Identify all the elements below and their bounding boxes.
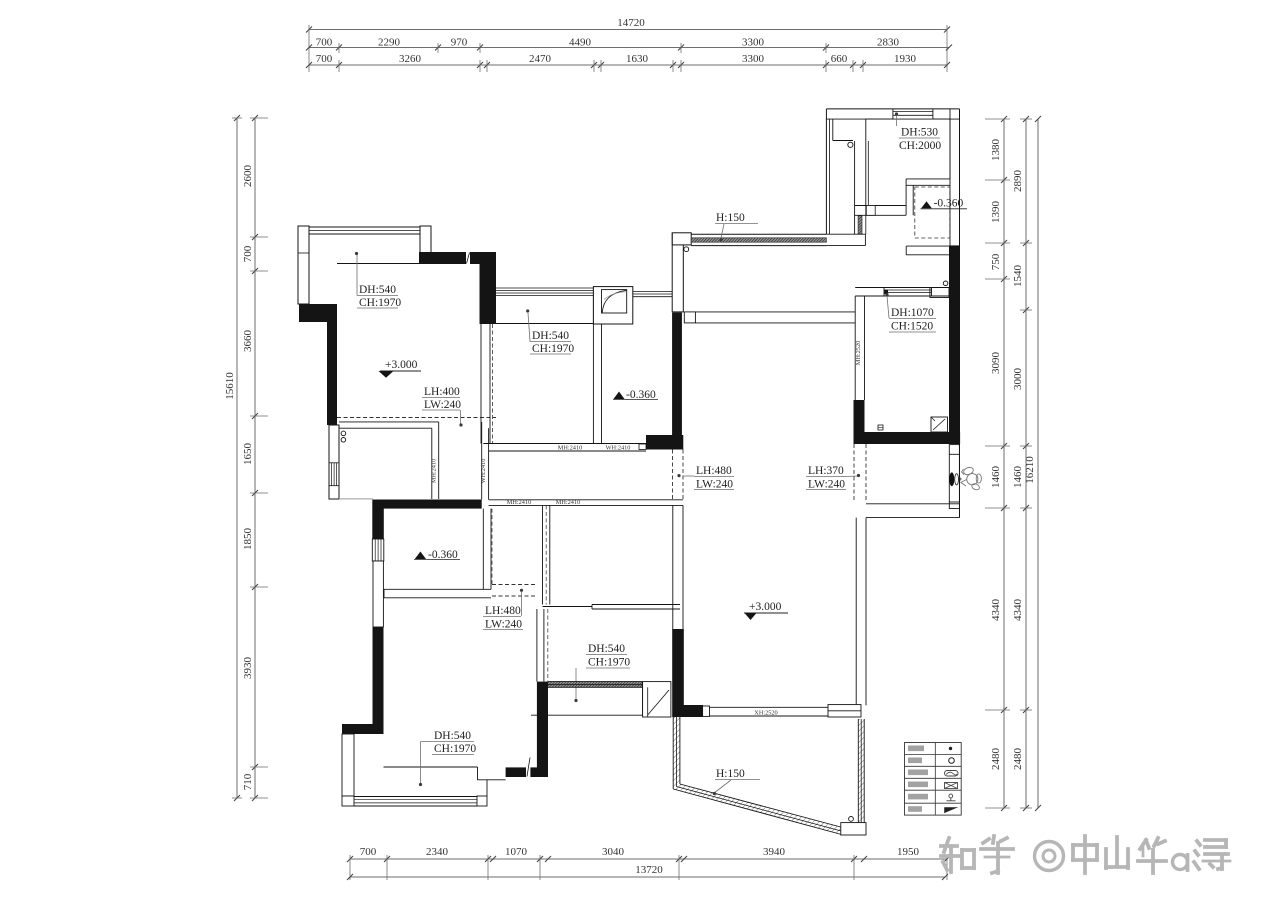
svg-text:700: 700	[242, 245, 254, 262]
svg-text:3940: 3940	[763, 846, 786, 858]
svg-text:H:150: H:150	[716, 768, 745, 780]
svg-text:16210: 16210	[1024, 456, 1036, 484]
svg-text:3660: 3660	[242, 330, 254, 353]
svg-text:1460: 1460	[990, 466, 1002, 489]
svg-text:LH:480: LH:480	[485, 605, 521, 617]
svg-text:700: 700	[316, 53, 333, 65]
svg-text:4340: 4340	[1012, 599, 1024, 622]
svg-text:2830: 2830	[877, 37, 900, 49]
svg-text:700: 700	[360, 846, 377, 858]
svg-text:2480: 2480	[1012, 748, 1024, 771]
svg-text:H:150: H:150	[716, 212, 745, 224]
svg-text:DH:540: DH:540	[588, 643, 625, 655]
svg-text:LH:370: LH:370	[808, 465, 844, 477]
svg-text:CH:1970: CH:1970	[434, 743, 476, 755]
svg-text:750: 750	[990, 253, 1002, 270]
svg-text:1850: 1850	[242, 528, 254, 551]
svg-text:CH:1520: CH:1520	[891, 321, 933, 333]
svg-text:3260: 3260	[399, 53, 422, 65]
svg-text:CH:2000: CH:2000	[899, 140, 941, 152]
svg-text:CH:1970: CH:1970	[588, 657, 630, 669]
svg-text:1540: 1540	[1012, 265, 1024, 288]
svg-text:LH:480: LH:480	[696, 465, 732, 477]
svg-text:2600: 2600	[242, 165, 254, 188]
svg-text:1630: 1630	[626, 53, 649, 65]
svg-text:1380: 1380	[990, 139, 1002, 162]
svg-text:2340: 2340	[426, 846, 449, 858]
svg-text:LW:240: LW:240	[485, 619, 522, 631]
svg-text:+3.000: +3.000	[385, 359, 418, 371]
svg-text:1930: 1930	[894, 53, 917, 65]
svg-text:3040: 3040	[602, 846, 625, 858]
svg-text:WH:2410: WH:2410	[480, 459, 487, 484]
svg-text:MH:2410: MH:2410	[507, 499, 532, 506]
svg-text:MH:2410: MH:2410	[556, 499, 581, 506]
svg-text:970: 970	[451, 37, 468, 49]
svg-text:1950: 1950	[897, 846, 920, 858]
svg-text:3930: 3930	[242, 657, 254, 680]
svg-text:DH:530: DH:530	[901, 127, 938, 139]
svg-text:+3.000: +3.000	[749, 601, 782, 613]
svg-text:1390: 1390	[990, 201, 1002, 224]
svg-text:4340: 4340	[990, 599, 1002, 622]
svg-text:2480: 2480	[990, 748, 1002, 771]
svg-text:-0.360: -0.360	[934, 198, 964, 210]
svg-text:LW:240: LW:240	[424, 399, 461, 411]
svg-text:1460: 1460	[1012, 466, 1024, 489]
svg-text:3090: 3090	[990, 352, 1002, 375]
svg-text:DH:540: DH:540	[434, 730, 471, 742]
svg-text:CH:1970: CH:1970	[359, 297, 401, 309]
svg-text:710: 710	[242, 773, 254, 790]
svg-text:LW:240: LW:240	[696, 479, 733, 491]
svg-text:CH:1970: CH:1970	[532, 343, 574, 355]
svg-text:LH:400: LH:400	[424, 386, 460, 398]
svg-text:1650: 1650	[242, 443, 254, 466]
svg-text:2890: 2890	[1012, 170, 1024, 193]
svg-text:2470: 2470	[529, 53, 552, 65]
svg-text:DH:540: DH:540	[532, 330, 569, 342]
svg-text:1070: 1070	[505, 846, 528, 858]
svg-text:3000: 3000	[1012, 368, 1024, 391]
svg-text:660: 660	[831, 53, 848, 65]
svg-text:3300: 3300	[742, 53, 765, 65]
svg-text:15610: 15610	[224, 372, 236, 400]
svg-text:2290: 2290	[378, 37, 401, 49]
svg-text:700: 700	[316, 37, 333, 49]
svg-text:14720: 14720	[617, 17, 645, 29]
svg-text:13720: 13720	[635, 864, 663, 876]
svg-text:MH:2520: MH:2520	[855, 341, 862, 366]
svg-text:LW:240: LW:240	[808, 479, 845, 491]
svg-text:DH:540: DH:540	[359, 284, 396, 296]
svg-text:XH:2520: XH:2520	[754, 710, 777, 717]
svg-text:MH:2410: MH:2410	[431, 459, 438, 484]
svg-text:3300: 3300	[742, 37, 765, 49]
svg-text:4490: 4490	[569, 37, 592, 49]
svg-text:MH:2410: MH:2410	[558, 444, 583, 451]
svg-text:DH:1070: DH:1070	[891, 307, 934, 319]
svg-text:WH:2410: WH:2410	[606, 444, 631, 451]
